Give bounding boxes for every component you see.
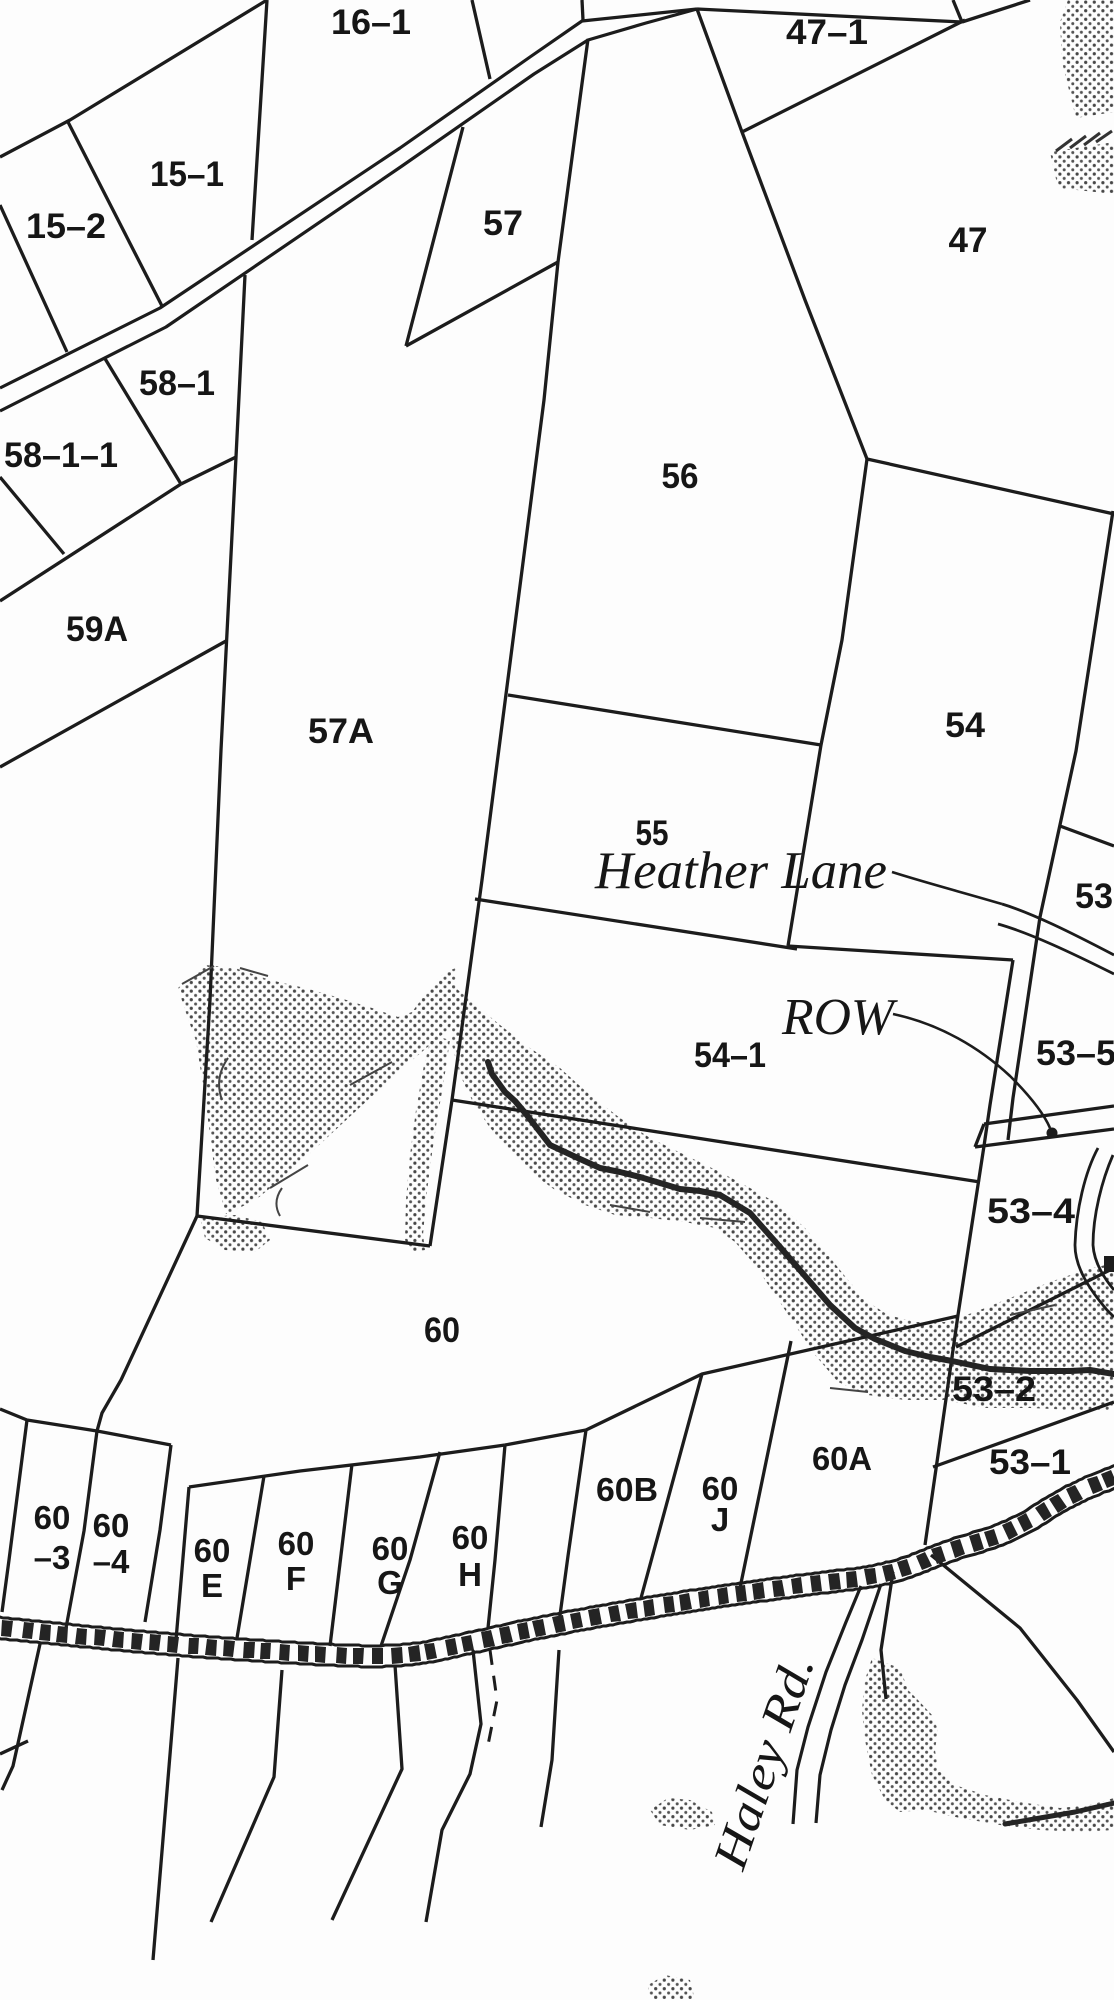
svg-text:F: F [286,1560,306,1597]
svg-text:16–1: 16–1 [331,3,411,42]
svg-text:H: H [458,1556,482,1593]
svg-text:15–1: 15–1 [150,155,224,194]
svg-text:–4: –4 [93,1543,130,1580]
svg-text:57: 57 [483,204,523,243]
svg-text:53–5: 53–5 [1036,1034,1114,1073]
svg-text:–3: –3 [34,1539,71,1576]
svg-text:ROW: ROW [781,989,899,1046]
svg-text:G: G [377,1564,403,1601]
svg-text:60A: 60A [812,1440,872,1477]
svg-text:Heather Lane: Heather Lane [594,842,887,900]
svg-text:J: J [711,1501,729,1538]
svg-text:15–2: 15–2 [26,207,106,246]
svg-text:47: 47 [949,221,988,260]
svg-text:60: 60 [93,1507,130,1544]
svg-text:58–1–1: 58–1–1 [4,436,118,475]
svg-text:E: E [201,1567,223,1604]
svg-text:60: 60 [194,1532,231,1569]
svg-text:57A: 57A [308,712,374,751]
svg-text:60: 60 [452,1519,489,1556]
svg-text:54: 54 [945,706,986,745]
svg-text:60: 60 [372,1530,409,1567]
svg-text:59A: 59A [66,610,128,649]
svg-text:56: 56 [662,457,699,496]
svg-text:58–1: 58–1 [139,364,215,403]
svg-text:60: 60 [278,1525,315,1562]
svg-text:53: 53 [1075,877,1113,916]
svg-text:54–1: 54–1 [694,1036,766,1075]
svg-text:60: 60 [424,1311,460,1350]
svg-text:47–1: 47–1 [786,13,868,52]
svg-text:53–4: 53–4 [987,1192,1076,1231]
svg-text:53–1: 53–1 [989,1443,1071,1482]
svg-text:53–2: 53–2 [952,1370,1036,1409]
svg-text:60B: 60B [596,1471,658,1508]
svg-text:60: 60 [34,1499,71,1536]
